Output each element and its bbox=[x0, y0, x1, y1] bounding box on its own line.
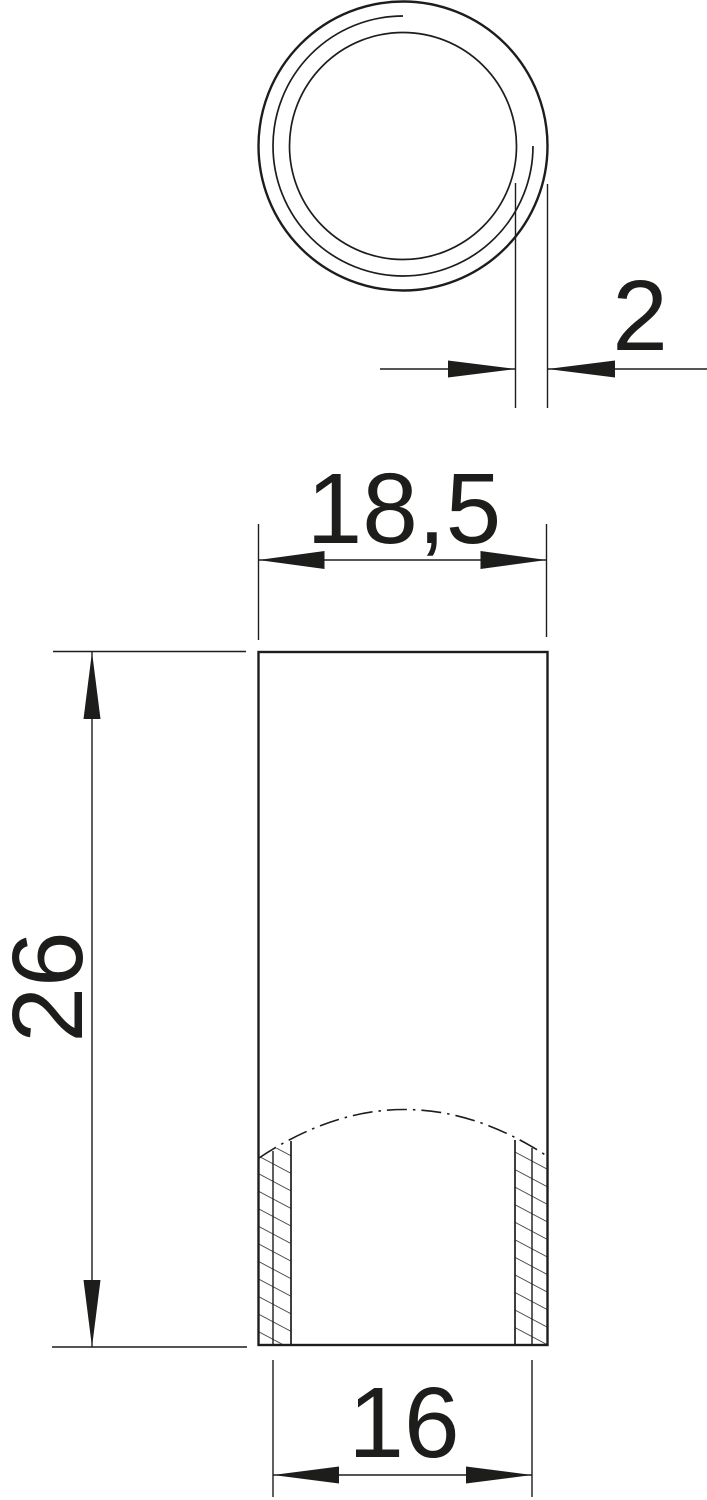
bore-circle bbox=[290, 33, 517, 260]
arrowhead bbox=[548, 361, 616, 378]
dim-label-length: 26 bbox=[0, 931, 104, 1042]
thread-arc bbox=[273, 16, 533, 276]
top-view bbox=[259, 2, 548, 291]
dimension-length: 26 bbox=[0, 652, 247, 1348]
dimension-inner-diameter: 16 bbox=[273, 1360, 532, 1497]
arrowhead bbox=[466, 1467, 532, 1484]
hatch-fill bbox=[259, 1141, 291, 1344]
hatch-fill bbox=[515, 1140, 547, 1344]
arrowhead bbox=[84, 652, 101, 719]
arrowhead bbox=[448, 361, 516, 378]
front-view bbox=[259, 652, 548, 1345]
dim-label-inner-diameter: 16 bbox=[348, 1367, 459, 1479]
outer-circle bbox=[259, 2, 548, 291]
body-outline bbox=[259, 652, 548, 1345]
dimension-outer-diameter: 18,5 bbox=[259, 453, 547, 640]
arrowhead bbox=[273, 1467, 339, 1484]
arrowhead bbox=[84, 1280, 101, 1347]
drawing-page: 2 18,5 bbox=[0, 0, 707, 1500]
dimension-wall-thickness: 2 bbox=[380, 183, 707, 408]
thread-section-left bbox=[259, 1141, 291, 1344]
dim-label-wall-thickness: 2 bbox=[612, 260, 668, 372]
thread-section-right bbox=[515, 1140, 547, 1344]
dim-label-outer-diameter: 18,5 bbox=[307, 453, 502, 565]
technical-drawing-canvas: 2 18,5 bbox=[0, 0, 707, 1500]
